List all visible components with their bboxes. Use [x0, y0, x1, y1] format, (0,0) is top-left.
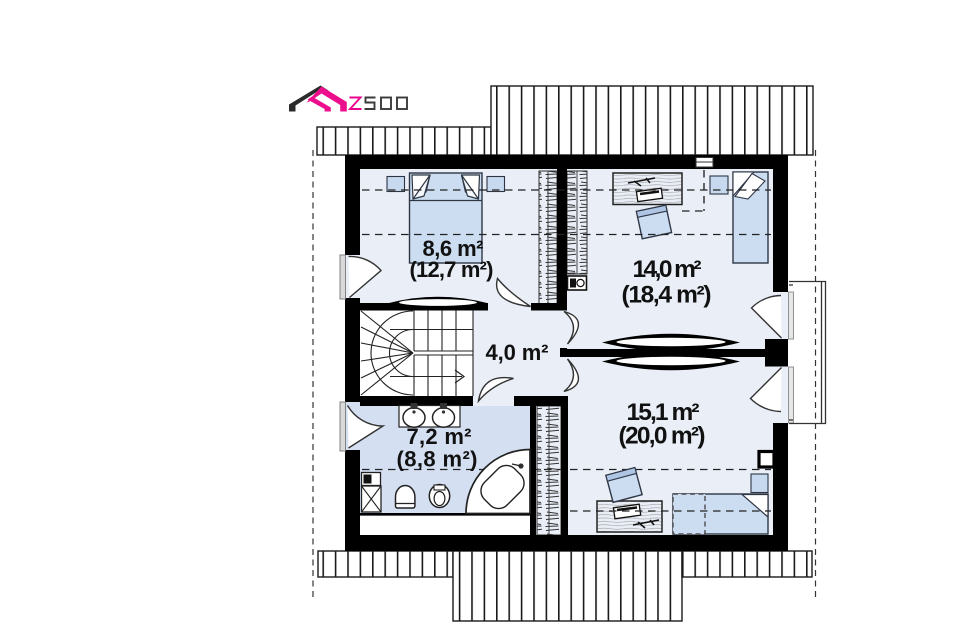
svg-text:4,0 m²: 4,0 m² [486, 340, 549, 365]
svg-text:7,2 m²: 7,2 m² [407, 424, 472, 449]
svg-text:(20,0 m²): (20,0 m²) [619, 423, 706, 450]
svg-text:14,0 m²: 14,0 m² [633, 256, 702, 283]
svg-text:(18,4 m²): (18,4 m²) [622, 282, 712, 309]
svg-text:(12,7 m²): (12,7 m²) [410, 257, 494, 282]
svg-text:(8,8 m²): (8,8 m²) [397, 447, 478, 472]
